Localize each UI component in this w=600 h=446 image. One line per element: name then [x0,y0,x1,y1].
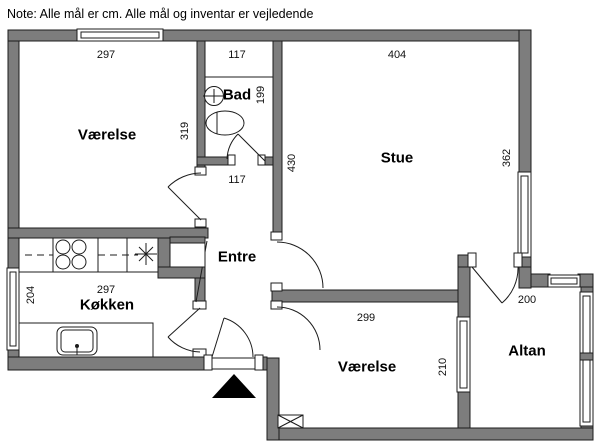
door-jamb [271,301,282,309]
door-arc [277,307,320,350]
window [518,172,531,257]
room-label-altan: Altan [508,343,546,360]
entrance-threshold [212,358,255,369]
stove-burner-icon [72,255,86,269]
dim-stue-height-left: 430 [286,154,298,172]
dim-altan-width: 200 [518,294,536,306]
dim-bad-height: 199 [255,86,267,104]
door-jamb [228,155,235,165]
wall [158,267,205,278]
stove-burner-icon [56,255,70,269]
door-leaf [168,308,200,337]
window-mullion [580,353,593,360]
door-jamb [255,355,263,370]
entre-closet [170,243,205,267]
wall [272,290,460,302]
room-label-entre: Entre [218,249,256,266]
door-jamb [468,253,476,267]
door-leaf [168,187,201,220]
wall [519,30,531,172]
window [457,317,470,392]
door-leaf [238,134,265,161]
wall [531,274,550,287]
door-jamb [271,283,282,291]
door-arc [224,318,253,357]
floor-plan: Note: Alle mål er cm. Alle mål og invent… [0,0,600,446]
stove-burner-icon [56,240,70,254]
door-jamb [204,355,212,370]
window [548,275,580,287]
wall [267,358,279,440]
note-text: Note: Alle mål er cm. Alle mål og invent… [7,7,313,21]
dim-koekken-width: 297 [97,284,115,296]
wall [273,41,282,233]
wall [458,267,470,317]
stove-burner-icon [72,240,86,254]
wall [267,428,593,440]
dim-vaerelse1-height: 319 [179,122,191,140]
wall [170,237,205,243]
wall [8,357,210,370]
wall [458,392,470,428]
dim-bad-width-top: 117 [228,49,246,61]
window [77,29,163,41]
dim-vaerelse2-height: 210 [437,358,449,376]
entrance-arrow-icon [212,374,256,398]
door-arc [277,242,323,288]
shaft-icon [278,415,303,428]
kitchen-sink-tap [76,345,79,348]
dim-stue-width: 404 [388,49,406,61]
wall [265,157,273,165]
window [7,268,19,350]
toilet-icon [206,111,244,135]
door-jamb [271,232,282,240]
door-leaf [212,318,224,357]
door-jamb [514,253,522,267]
door-arc [502,267,518,303]
door-leaf [472,267,502,303]
room-label-vaerelse-1: Værelse [78,127,136,144]
room-label-koekken: Køkken [80,297,134,314]
dim-stue-height-right: 362 [501,149,513,167]
dim-bad-width-bottom: 117 [228,174,246,186]
dim-koekken-height: 204 [25,286,37,304]
room-label-vaerelse-2: Værelse [338,359,396,376]
walls [8,30,593,440]
floor-plan-drawing [0,0,600,446]
door-jamb [195,167,206,175]
room-label-stue: Stue [381,150,414,167]
dim-vaerelse2-width: 299 [357,312,375,324]
dim-vaerelse1-width: 297 [97,49,115,61]
room-label-bad: Bad [223,87,251,104]
wall [197,41,205,168]
